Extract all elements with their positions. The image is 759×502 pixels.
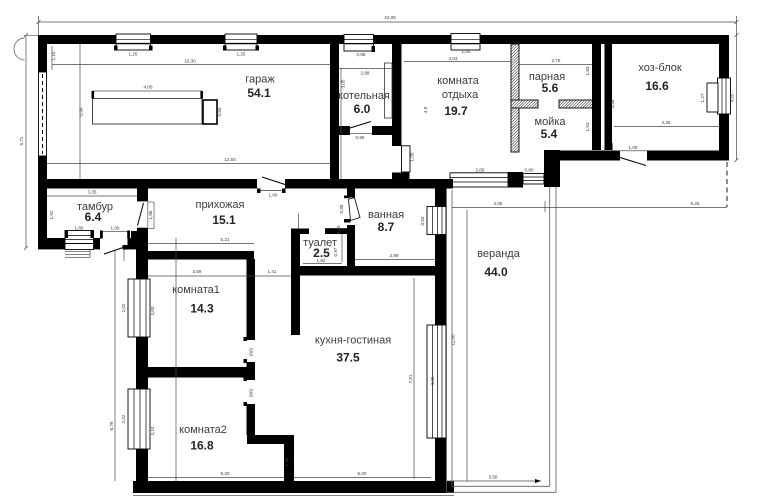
svg-text:0,88: 0,88 <box>339 204 344 213</box>
svg-text:2,88: 2,88 <box>361 71 370 76</box>
svg-text:2,02: 2,02 <box>121 414 126 423</box>
svg-text:2,02: 2,02 <box>121 303 126 312</box>
svg-text:прихожая: прихожая <box>195 199 244 211</box>
svg-text:4,9: 4,9 <box>423 106 428 113</box>
svg-text:2,75: 2,75 <box>552 58 561 63</box>
svg-text:4,10: 4,10 <box>150 426 155 435</box>
svg-text:1,00: 1,00 <box>410 152 415 161</box>
svg-text:3,00: 3,00 <box>336 225 341 234</box>
svg-text:3,59: 3,59 <box>193 269 202 274</box>
svg-text:комната2: комната2 <box>179 424 227 436</box>
svg-text:(80): (80) <box>249 347 254 356</box>
svg-text:19.7: 19.7 <box>444 104 468 118</box>
svg-text:1,41: 1,41 <box>268 269 277 274</box>
svg-text:5,21: 5,21 <box>221 237 230 242</box>
svg-text:1,45: 1,45 <box>284 457 289 466</box>
svg-text:12,50: 12,50 <box>224 157 236 162</box>
svg-text:3,56: 3,56 <box>489 475 498 480</box>
svg-text:37.5: 37.5 <box>336 351 360 365</box>
svg-text:1,25: 1,25 <box>129 52 138 57</box>
svg-text:1,53: 1,53 <box>585 122 590 131</box>
svg-text:0,95: 0,95 <box>357 52 366 57</box>
svg-text:4,55: 4,55 <box>730 93 735 102</box>
svg-text:1,05: 1,05 <box>462 49 471 54</box>
svg-text:0,50: 0,50 <box>217 107 222 116</box>
svg-text:1,00: 1,00 <box>269 193 278 198</box>
svg-text:0,96: 0,96 <box>356 135 365 140</box>
svg-text:кухня-гостиная: кухня-гостиная <box>315 335 391 347</box>
svg-text:2,89: 2,89 <box>390 253 399 258</box>
svg-text:6.4: 6.4 <box>85 210 102 224</box>
svg-text:4,00: 4,00 <box>144 85 153 90</box>
svg-text:1,10: 1,10 <box>51 51 56 60</box>
svg-text:отдыха: отдыха <box>442 89 479 101</box>
svg-text:комната1: комната1 <box>172 284 220 296</box>
svg-text:2,05: 2,05 <box>476 168 485 173</box>
svg-text:2.5: 2.5 <box>313 246 330 260</box>
svg-text:6,79: 6,79 <box>109 421 114 430</box>
svg-text:комната: комната <box>437 75 479 87</box>
svg-text:6,25: 6,25 <box>691 201 700 206</box>
svg-text:1,86: 1,86 <box>148 210 153 219</box>
svg-text:5.4: 5.4 <box>541 127 558 141</box>
svg-text:1,80: 1,80 <box>75 226 84 231</box>
svg-text:16.8: 16.8 <box>190 439 214 453</box>
svg-text:4,03: 4,03 <box>449 56 458 61</box>
svg-text:0,93: 0,93 <box>420 216 425 225</box>
svg-text:14.3: 14.3 <box>190 302 214 316</box>
svg-text:24,05: 24,05 <box>384 15 396 20</box>
svg-text:0,90: 0,90 <box>79 107 84 116</box>
svg-text:5,72: 5,72 <box>19 136 24 145</box>
svg-text:(80): (80) <box>249 388 254 397</box>
svg-text:44.0: 44.0 <box>484 265 508 279</box>
svg-text:котельная: котельная <box>338 90 390 102</box>
svg-text:3,05: 3,05 <box>341 79 346 88</box>
svg-text:7,51: 7,51 <box>408 374 413 383</box>
svg-text:гараж: гараж <box>245 74 275 86</box>
svg-text:1,00: 1,00 <box>629 145 638 150</box>
svg-text:1,25: 1,25 <box>237 52 246 57</box>
svg-text:5,00: 5,00 <box>358 471 367 476</box>
svg-text:5.6: 5.6 <box>542 81 559 95</box>
svg-text:1,83: 1,83 <box>585 66 590 75</box>
svg-text:3,35: 3,35 <box>88 190 97 195</box>
svg-text:1,27: 1,27 <box>700 93 705 102</box>
svg-text:5,20: 5,20 <box>221 471 230 476</box>
svg-text:11,00: 11,00 <box>451 334 456 346</box>
svg-text:4,35: 4,35 <box>430 376 435 385</box>
svg-text:54.1: 54.1 <box>247 86 271 100</box>
svg-text:веранда: веранда <box>477 248 521 260</box>
svg-text:10,30: 10,30 <box>184 59 196 64</box>
svg-text:8.7: 8.7 <box>378 220 395 234</box>
svg-text:16.6: 16.6 <box>645 79 669 93</box>
svg-text:1,92: 1,92 <box>49 210 54 219</box>
svg-text:хоз-блок: хоз-блок <box>638 62 682 74</box>
svg-text:1,00: 1,00 <box>111 226 120 231</box>
svg-text:4,05: 4,05 <box>494 201 503 206</box>
svg-text:4,25: 4,25 <box>662 120 671 125</box>
svg-text:6.0: 6.0 <box>354 102 371 116</box>
svg-text:15.1: 15.1 <box>212 213 236 227</box>
svg-text:3,88: 3,88 <box>610 99 615 108</box>
svg-text:4,00: 4,00 <box>150 306 155 315</box>
svg-text:0,80: 0,80 <box>525 168 534 173</box>
